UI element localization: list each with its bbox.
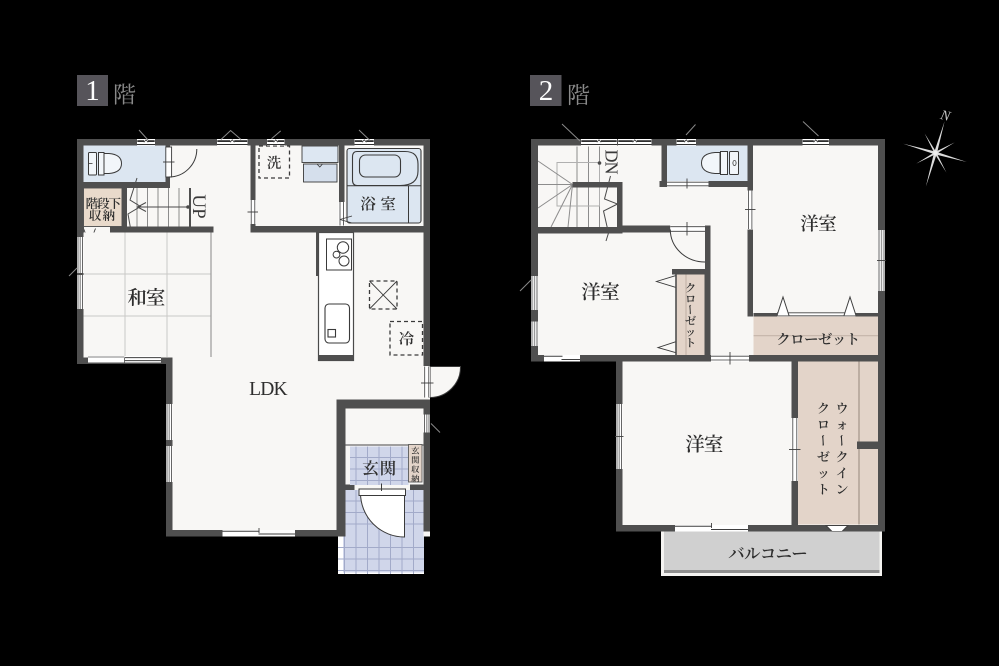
svg-text:DN: DN xyxy=(602,150,622,175)
svg-text:LDK: LDK xyxy=(249,379,287,400)
svg-text:1: 1 xyxy=(85,75,100,107)
svg-text:2: 2 xyxy=(539,75,554,107)
svg-text:UP: UP xyxy=(188,194,209,218)
